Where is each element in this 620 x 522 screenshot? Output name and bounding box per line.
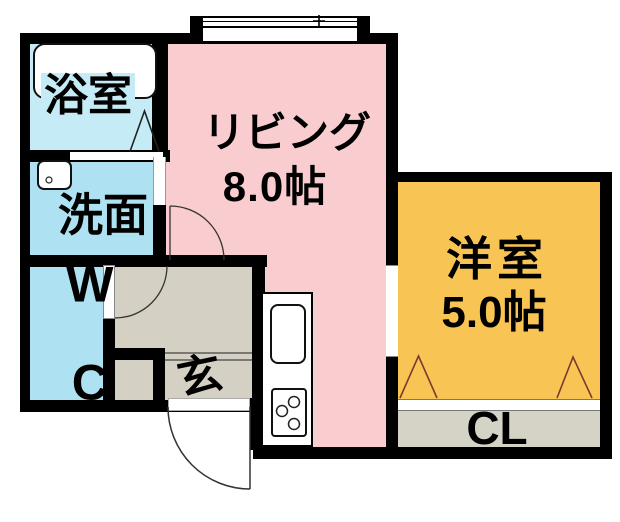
entrance-door-opening — [168, 398, 250, 411]
bath-label: 浴室 — [41, 73, 135, 119]
living-size-label: 8.0帖 — [223, 166, 327, 208]
western-room-size-label: 5.0帖 — [441, 291, 546, 335]
toilet-label: W C — [11, 212, 114, 457]
bath-door-opening — [70, 150, 163, 162]
living-label: リビング — [203, 112, 371, 154]
wall-bottom-right — [253, 447, 612, 459]
entrance-label: 玄 — [174, 351, 226, 403]
wall-living-east — [386, 33, 398, 447]
wall-entrance-pocket-east — [153, 348, 165, 402]
wall-western-top — [386, 172, 612, 182]
floor-plan: 浴室 洗面 W C リビング 8.0帖 洋室 5.0帖 CL 玄 — [0, 0, 620, 522]
stove-icon — [271, 388, 307, 437]
kitchen-sink-icon — [270, 304, 306, 364]
toilet-label-line2: C — [72, 355, 108, 411]
window-post-left — [190, 16, 203, 44]
entrance-door-swing-icon — [168, 407, 250, 489]
washroom-door-opening — [153, 157, 166, 205]
wall-right-outer — [600, 172, 612, 459]
window-rail-line-1 — [203, 21, 357, 22]
western-room-label: 洋室 — [446, 236, 548, 282]
western-room-opening — [386, 265, 398, 357]
toilet-label-line1: W — [66, 257, 113, 313]
window-rail-line-2 — [203, 26, 357, 28]
washbasin-icon — [37, 160, 72, 190]
closet-label: CL — [466, 405, 527, 451]
